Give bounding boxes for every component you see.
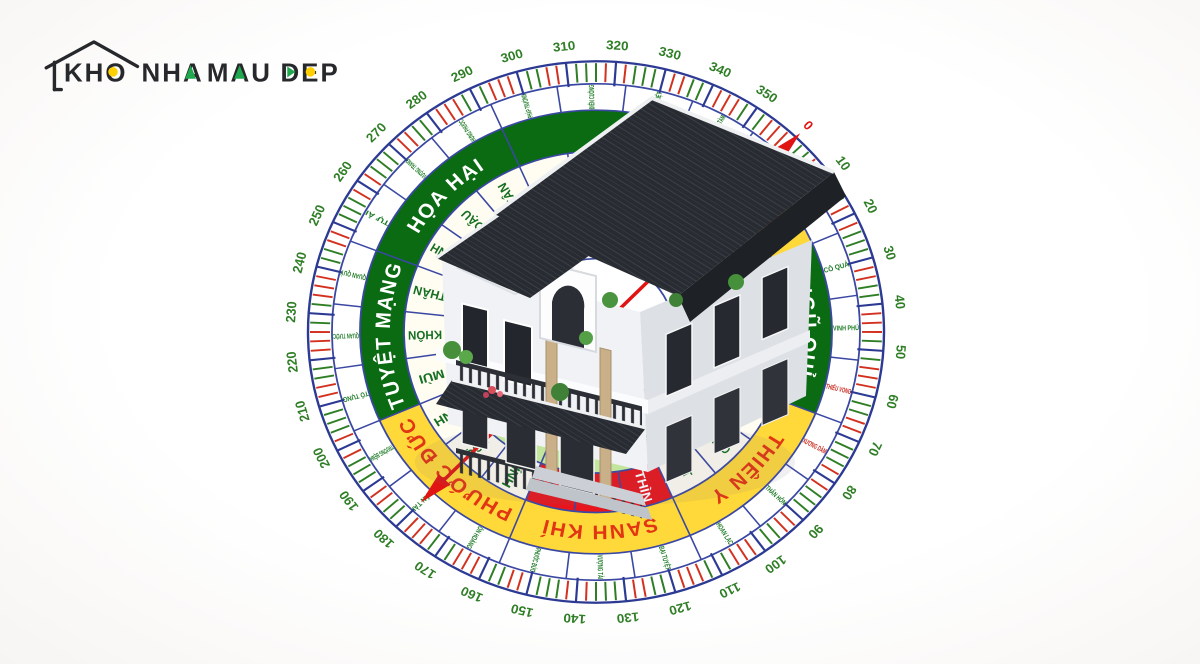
- degree-number: 160: [458, 584, 485, 606]
- degree-number: 60: [883, 393, 902, 410]
- star-label: ÔN HOÀNG: [464, 525, 485, 551]
- degree-number: 260: [330, 159, 355, 185]
- degree-number: 40: [891, 294, 908, 310]
- star-label: VƯỢNG TÀI: [595, 555, 605, 580]
- mountain-label: KHÔN: [408, 328, 442, 343]
- star-label: TRƯỜNG BỆNH: [368, 443, 395, 463]
- star-label: QUAN QUỶ: [340, 268, 368, 282]
- degree-number: 270: [363, 120, 390, 145]
- degree-number: 320: [606, 37, 630, 53]
- degree-number: 130: [616, 609, 640, 626]
- degree-number: 310: [552, 38, 576, 55]
- star-label: XƯƠNG DÂM: [801, 436, 828, 455]
- star-label: VƯỢNG TRANG: [403, 157, 428, 180]
- star-label: TỰ ẢI: [364, 208, 391, 227]
- degree-number: 90: [805, 521, 827, 541]
- star-label: CÔ QUẢ: [823, 259, 851, 274]
- degree-number: 300: [499, 46, 525, 66]
- degree-number: 0: [800, 118, 816, 133]
- degree-number: 100: [762, 552, 789, 576]
- degree-number: 280: [403, 87, 430, 111]
- degree-number: 330: [657, 44, 683, 63]
- star-label: PHÁP TRƯỜNG: [519, 93, 535, 119]
- star-label: ĐIÊN CUỒNG: [586, 85, 597, 110]
- degree-number: 170: [411, 558, 438, 582]
- degree-number: 240: [289, 250, 309, 274]
- degree-number: 190: [336, 488, 362, 514]
- degree-number: 150: [509, 601, 535, 620]
- degree-number: 50: [893, 344, 909, 359]
- star-label: BẠI TUYỆT: [657, 545, 673, 571]
- star-label: VINH PHÚ: [833, 323, 859, 332]
- degree-number: 180: [370, 526, 397, 551]
- star-label: PHƯỚC ĐỨC: [528, 547, 543, 573]
- star-label: HƯNG PHƯỚC: [456, 118, 478, 144]
- degree-number: 340: [707, 59, 734, 81]
- degree-number: 350: [753, 82, 780, 106]
- degree-number: 200: [309, 445, 333, 470]
- degree-number: 110: [717, 579, 743, 601]
- fengshui-compass: 0102030405060708090100110120130140150160…: [0, 0, 1200, 664]
- degree-number: 20: [860, 197, 880, 216]
- star-label: THÂN HÔN: [763, 484, 788, 507]
- degree-number: 70: [865, 439, 885, 458]
- star-label: TỐ TỤNG: [342, 389, 370, 405]
- degree-number: 290: [449, 63, 476, 85]
- degree-number: 80: [839, 483, 860, 503]
- degree-number: 30: [880, 244, 899, 262]
- star-label: HOAN LẠC: [714, 521, 736, 547]
- star-label: THIẾU VONG: [825, 381, 853, 396]
- degree-number: 210: [292, 399, 313, 423]
- page: KHO NHA MAU DEP 010203040506070809010011…: [0, 0, 1200, 664]
- degree-number: 120: [667, 598, 693, 618]
- degree-number: 220: [283, 351, 301, 374]
- star-label: QUAN TƯỚC: [333, 332, 360, 341]
- degree-number: 140: [563, 611, 587, 627]
- degree-number: 10: [833, 153, 854, 173]
- degree-number: 250: [305, 203, 328, 228]
- degree-number: 230: [283, 301, 300, 323]
